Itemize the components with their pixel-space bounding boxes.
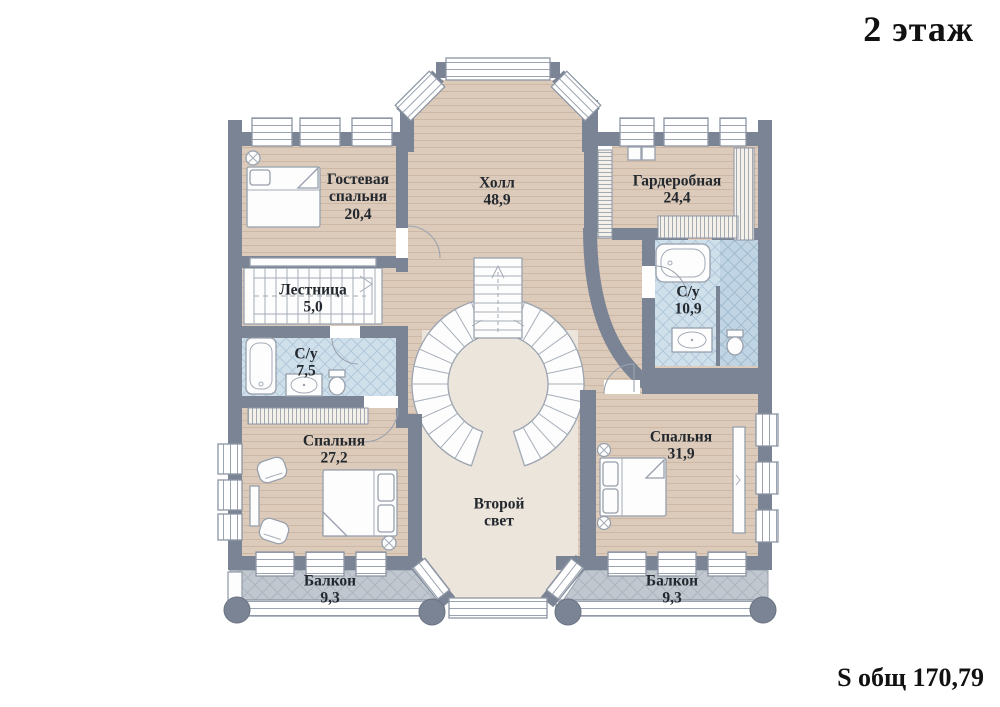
column <box>750 597 776 623</box>
bed-left <box>323 470 397 536</box>
wardrobe-door <box>642 147 655 160</box>
room-area: 31,9 <box>631 446 731 463</box>
window <box>218 480 242 510</box>
window <box>218 514 242 540</box>
window <box>756 462 778 494</box>
pillow <box>603 462 618 486</box>
room-label-bedroom-right: Спальня 31,9 <box>631 429 731 464</box>
room-label-staircase: Лестница 5,0 <box>253 282 373 317</box>
ceiling-lamp-icon <box>598 517 611 530</box>
bedroom-closet <box>248 408 368 424</box>
room-area: 5,0 <box>253 299 373 316</box>
tv-cabinet-left <box>250 486 259 526</box>
bay-window <box>449 598 547 618</box>
pillow <box>603 489 618 513</box>
room-label-hall: Холл 48,9 <box>452 175 542 210</box>
room-name: Гостевая спальня <box>327 171 389 205</box>
window <box>756 414 778 446</box>
stair-opening <box>250 258 376 266</box>
window <box>352 118 392 146</box>
sink-right <box>672 328 712 352</box>
floor-plan-drawing <box>0 0 1000 707</box>
window <box>756 510 778 542</box>
straight-flight <box>474 258 522 338</box>
bathtub-right <box>656 244 710 282</box>
window <box>720 118 746 146</box>
tv-cabinet-right <box>733 427 745 533</box>
wardrobe-door <box>628 147 641 160</box>
room-area: 9,3 <box>290 590 370 607</box>
room-label-bathroom-left: С/у 7,5 <box>276 346 336 381</box>
room-area: 10,9 <box>658 301 718 318</box>
window <box>218 444 242 474</box>
column <box>419 599 445 625</box>
ceiling-lamp-icon <box>246 151 260 165</box>
window <box>708 552 746 576</box>
room-name: Гардеробная <box>633 173 722 190</box>
room-label-bedroom-left: Спальня 27,2 <box>284 433 384 468</box>
room-name: С/у <box>294 346 317 363</box>
room-label-bathroom-right: С/у 10,9 <box>658 284 718 319</box>
room-name: Балкон <box>646 573 698 590</box>
room-name: Балкон <box>304 573 356 590</box>
window <box>256 552 294 576</box>
window <box>620 118 654 146</box>
window <box>252 118 292 146</box>
room-name: Спальня <box>650 429 712 446</box>
room-label-wardrobe: Гардеробная 24,4 <box>607 173 747 208</box>
room-area: 9,3 <box>632 590 712 607</box>
pillow <box>378 505 394 532</box>
room-name: Холл <box>479 175 515 192</box>
column <box>555 599 581 625</box>
room-area: 27,2 <box>284 450 384 467</box>
ceiling-lamp-icon <box>598 444 611 457</box>
floor-plan-page: 2 этаж <box>0 0 1000 707</box>
room-name: Спальня <box>303 433 365 450</box>
bathtub-left <box>246 338 276 394</box>
room-label-guest-bedroom: Гостевая спальня 20,4 <box>306 171 410 223</box>
window <box>664 118 708 146</box>
room-label-balcony-right: Балкон 9,3 <box>632 573 712 608</box>
window <box>300 118 340 146</box>
room-area: 20,4 <box>306 206 410 223</box>
room-label-second-light: Второй свет <box>457 496 541 531</box>
room-name: Второй свет <box>474 496 525 530</box>
column <box>224 597 250 623</box>
bay-window <box>446 58 550 80</box>
bed-right <box>600 458 666 516</box>
room-area: 24,4 <box>607 190 747 207</box>
room-name: С/у <box>676 284 699 301</box>
room-area: 48,9 <box>452 192 542 209</box>
room-area: 7,5 <box>276 363 336 380</box>
ceiling-lamp-icon <box>382 536 396 550</box>
pillow <box>378 474 394 501</box>
toilet-right <box>727 330 743 355</box>
pillow <box>250 170 270 185</box>
room-name: Лестница <box>279 282 347 299</box>
total-area-label: S общ 170,79 <box>837 663 984 693</box>
room-label-balcony-left: Балкон 9,3 <box>290 573 370 608</box>
page-title: 2 этаж <box>863 8 974 50</box>
wardrobe-closet <box>658 216 738 238</box>
